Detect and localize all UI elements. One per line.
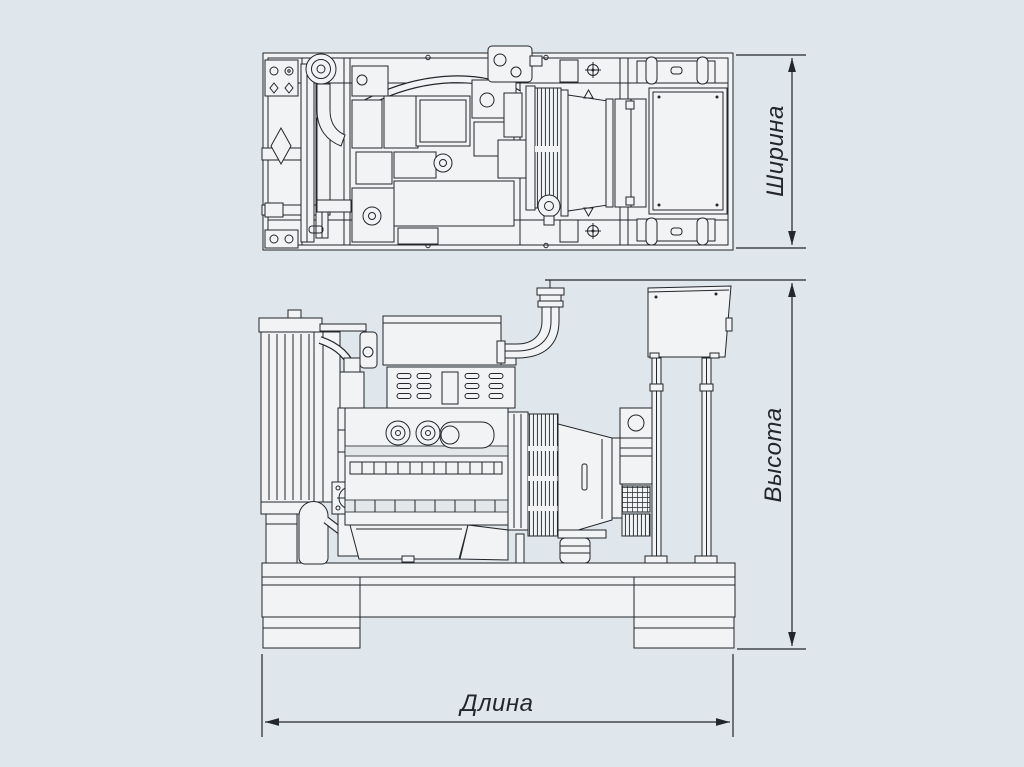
side-view-generator bbox=[508, 408, 652, 563]
side-view-base-skid bbox=[262, 563, 735, 648]
diagram-canvas: Ширина Высота Длина bbox=[0, 0, 1024, 767]
side-view bbox=[259, 280, 735, 648]
side-view-control-panel bbox=[645, 286, 732, 563]
top-view bbox=[262, 46, 733, 250]
top-view-engine bbox=[352, 46, 542, 244]
top-view-control-box bbox=[649, 88, 727, 214]
top-view-generator bbox=[526, 86, 646, 225]
generator-dimension-drawing bbox=[0, 0, 1024, 767]
length-dimension-label: Длина bbox=[461, 692, 534, 716]
side-view-exhaust bbox=[497, 280, 564, 363]
height-dimension-label: Высота bbox=[762, 407, 786, 502]
width-dimension-label: Ширина bbox=[764, 105, 788, 197]
